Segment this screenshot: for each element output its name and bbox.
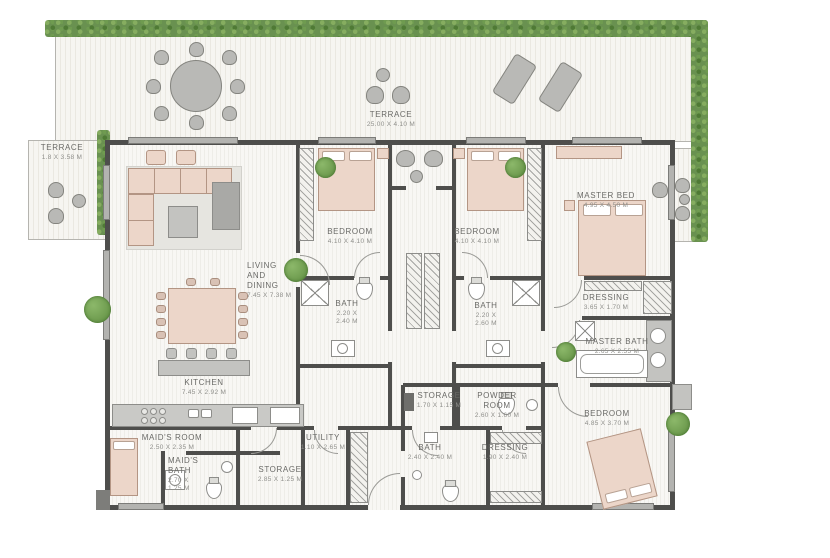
bathroom-sink: [221, 461, 233, 473]
foyer-chair: [396, 150, 415, 167]
room-name: STORAGE: [258, 465, 302, 475]
window: [118, 503, 164, 510]
pillow: [349, 151, 372, 161]
wall-segment: [436, 186, 454, 190]
foyer-table: [410, 170, 423, 183]
room-label-maids-room: MAID'S ROOM 2.50 X 2.35 M: [142, 433, 203, 452]
room-dims: 4.10 X 4.10 M: [327, 238, 373, 246]
room-name: BEDROOM: [584, 409, 630, 419]
room-name: MAID'S ROOM: [142, 433, 203, 443]
dining-chair: [238, 331, 248, 339]
wall-segment: [236, 430, 240, 505]
room-dims: 2.60 X 1.60 M: [475, 412, 519, 420]
service-box: [672, 384, 692, 410]
bar-stool: [206, 348, 217, 359]
wardrobe: [299, 148, 314, 241]
room-dims: 1.90 X 2.40 M: [482, 454, 529, 462]
room-name: MAID'S BATH: [168, 456, 198, 476]
room-label-storage-mid: STORAGE 1.70 X 1.15 M: [417, 391, 461, 410]
dining-chair: [156, 305, 166, 313]
plant-icon: [666, 412, 690, 436]
wall-segment: [303, 426, 314, 430]
kitchen-sink: [201, 409, 212, 418]
wall-segment: [388, 145, 392, 331]
wall-segment: [452, 364, 543, 368]
room-dims: 1.8 X 3.58 M: [41, 154, 83, 162]
cabinet: [212, 182, 240, 230]
bathroom-sink: [526, 399, 538, 411]
sofa: [128, 194, 154, 246]
armchair: [652, 182, 668, 198]
wall-segment: [584, 276, 672, 280]
fridge: [232, 407, 258, 424]
room-dims: 4.10 X 4.10 M: [454, 238, 500, 246]
coffee-table: [168, 206, 198, 238]
room-name: KITCHEN: [182, 378, 226, 388]
balcony-chair: [675, 178, 690, 193]
plant-icon: [315, 157, 336, 178]
room-dims: 7.45 X 7.38 M: [247, 292, 291, 300]
dining-chair: [210, 278, 220, 286]
shaft: [404, 393, 414, 411]
terrace-chair: [154, 106, 169, 121]
wall-segment: [298, 364, 390, 368]
room-label-master-bed: MASTER BED 4.95 X 4.50 M: [577, 191, 635, 210]
room-dims: 3.65 X 1.70 M: [583, 304, 630, 312]
room-dims: 2.20 X 2.40 M: [335, 310, 358, 326]
terrace-dining-table: [170, 60, 222, 112]
stove-burner: [159, 417, 166, 424]
room-dims: 1.10 X 2.65 M: [301, 444, 345, 452]
dining-chair: [238, 318, 248, 326]
wall-segment: [388, 362, 392, 430]
armchair: [176, 150, 196, 165]
room-label-terrace-top: TERRACE 25.00 X 4.10 M: [367, 110, 415, 129]
bathroom-sink: [492, 343, 503, 354]
dining-chair: [238, 305, 248, 313]
wall-segment: [526, 426, 543, 430]
room-name: BATH: [335, 299, 358, 309]
window: [103, 165, 110, 220]
dining-chair: [156, 292, 166, 300]
room-name: BEDROOM: [327, 227, 373, 237]
bar-stool: [166, 348, 177, 359]
wardrobe: [643, 281, 672, 314]
room-label-bath3: BATH 2.40 X 2.40 M: [408, 443, 452, 462]
pillow: [471, 151, 494, 161]
shower: [512, 280, 540, 306]
room-label-dressing-master: DRESSING 3.65 X 1.70 M: [583, 293, 630, 312]
terrace-chair: [222, 50, 237, 65]
window: [103, 250, 110, 340]
room-name: BATH: [408, 443, 452, 453]
wardrobe: [490, 491, 542, 503]
stove-burner: [150, 417, 157, 424]
terrace-chair: [189, 42, 204, 57]
floor-plan: TERRACE 25.00 X 4.10 M TERRACE 1.8 X 3.5…: [0, 0, 830, 558]
room-dims: 2.20 X 2.60 M: [474, 312, 497, 328]
plant-icon: [505, 157, 526, 178]
room-dims: 2.70 X 1.25 M: [168, 477, 198, 493]
left-terrace-table: [72, 194, 86, 208]
nightstand: [564, 200, 575, 211]
window: [668, 428, 675, 492]
room-name: POWDER ROOM: [475, 391, 519, 411]
room-dims: 2.50 X 2.35 M: [142, 444, 203, 452]
terrace-chair: [146, 79, 161, 94]
bathroom-sink: [650, 352, 666, 368]
kitchen-island: [158, 360, 250, 376]
room-dims: 2.85 X 1.25 M: [258, 476, 302, 484]
window: [668, 165, 675, 220]
room-label-master-bath: MASTER BATH 2.65 X 2.55 M: [586, 337, 649, 356]
hall-closet: [406, 253, 422, 329]
nightstand: [377, 148, 389, 159]
room-name: BEDROOM: [454, 227, 500, 237]
terrace-chair: [154, 50, 169, 65]
hall-closet: [424, 253, 440, 329]
room-name: TERRACE: [367, 110, 415, 120]
balcony-chair: [675, 206, 690, 221]
terrace-chair: [230, 79, 245, 94]
room-label-utility: UTILITY 1.10 X 2.65 M: [301, 433, 345, 452]
window: [128, 137, 238, 144]
wall-segment: [401, 477, 405, 505]
shower: [301, 280, 329, 306]
room-name: STORAGE: [417, 391, 461, 401]
room-dims: 4.85 X 3.70 M: [584, 420, 630, 428]
room-label-terrace-left: TERRACE 1.8 X 3.58 M: [41, 143, 83, 162]
bathroom-sink: [337, 343, 348, 354]
room-name: DRESSING: [482, 443, 529, 453]
wall-segment: [390, 186, 406, 190]
window: [318, 137, 376, 144]
room-label-dressing2: DRESSING 1.90 X 2.40 M: [482, 443, 529, 462]
corner-column: [96, 490, 110, 510]
room-dims: 25.00 X 4.10 M: [367, 121, 415, 129]
terrace-chair: [189, 115, 204, 130]
terrace-lounge-chair: [366, 86, 384, 104]
hedge-right: [691, 20, 708, 242]
room-dims: 1.70 X 1.15 M: [417, 402, 461, 410]
dining-chair: [156, 331, 166, 339]
window: [572, 137, 642, 144]
room-label-storage-left: STORAGE 2.85 X 1.25 M: [258, 465, 302, 484]
left-terrace-chair: [48, 182, 64, 198]
room-dims: 4.95 X 4.50 M: [577, 202, 635, 210]
terrace-chair: [222, 106, 237, 121]
stove-burner: [150, 408, 157, 415]
room-name: UTILITY: [301, 433, 345, 443]
wall-segment: [590, 383, 672, 387]
room-name: MASTER BED: [577, 191, 635, 201]
stove-burner: [141, 417, 148, 424]
bar-stool: [226, 348, 237, 359]
plant-icon: [556, 342, 576, 362]
room-label-maids-bath: MAID'S BATH 2.70 X 1.25 M: [168, 456, 198, 493]
bathroom-sink: [650, 328, 666, 344]
room-label-bedroom2: BEDROOM 4.10 X 4.10 M: [454, 227, 500, 246]
kitchen-sink: [188, 409, 199, 418]
room-label-bath2: BATH 2.20 X 2.60 M: [474, 301, 497, 328]
vanity: [424, 432, 438, 443]
room-label-bedroom1: BEDROOM 4.10 X 4.10 M: [327, 227, 373, 246]
bar-stool: [186, 348, 197, 359]
wardrobe: [527, 148, 542, 241]
room-dims: 2.40 X 2.40 M: [408, 454, 452, 462]
room-name: LIVING AND DINING: [247, 261, 291, 291]
room-dims: 2.65 X 2.55 M: [586, 348, 649, 356]
pillow: [113, 441, 135, 450]
balcony-table: [679, 194, 690, 205]
room-label-living: LIVING AND DINING 7.45 X 7.38 M: [247, 261, 291, 300]
stove-burner: [159, 408, 166, 415]
wall-segment: [440, 426, 502, 430]
pillow: [629, 483, 653, 498]
dining-chair: [156, 318, 166, 326]
wall-segment: [403, 383, 558, 387]
room-label-bedroom3: BEDROOM 4.85 X 3.70 M: [584, 409, 630, 428]
left-terrace-chair: [48, 208, 64, 224]
nightstand: [453, 148, 465, 159]
window: [466, 137, 526, 144]
room-name: BATH: [474, 301, 497, 311]
room-dims: 7.45 X 2.92 M: [182, 389, 226, 397]
bathroom-sink: [412, 470, 422, 480]
room-label-bath1: BATH 2.20 X 2.40 M: [335, 299, 358, 326]
stove-burner: [141, 408, 148, 415]
dresser: [556, 146, 622, 159]
room-label-powder: POWDER ROOM 2.60 X 1.60 M: [475, 391, 519, 420]
armchair: [146, 150, 166, 165]
pillow: [605, 489, 629, 504]
dining-chair: [186, 278, 196, 286]
hedge-top: [45, 20, 708, 37]
wall-segment: [338, 426, 403, 430]
foyer-chair: [424, 150, 443, 167]
wall-segment: [403, 426, 412, 430]
terrace-lounge-chair: [392, 86, 410, 104]
wardrobe: [584, 281, 642, 291]
room-name: DRESSING: [583, 293, 630, 303]
terrace-side-table: [376, 68, 390, 82]
plant-icon: [84, 296, 111, 323]
kitchen-appliance: [270, 407, 300, 424]
room-name: TERRACE: [41, 143, 83, 153]
utility-closet: [350, 432, 368, 503]
wall-segment: [380, 276, 390, 280]
room-name: MASTER BATH: [586, 337, 649, 347]
dining-table: [168, 288, 236, 344]
room-label-kitchen: KITCHEN 7.45 X 2.92 M: [182, 378, 226, 397]
